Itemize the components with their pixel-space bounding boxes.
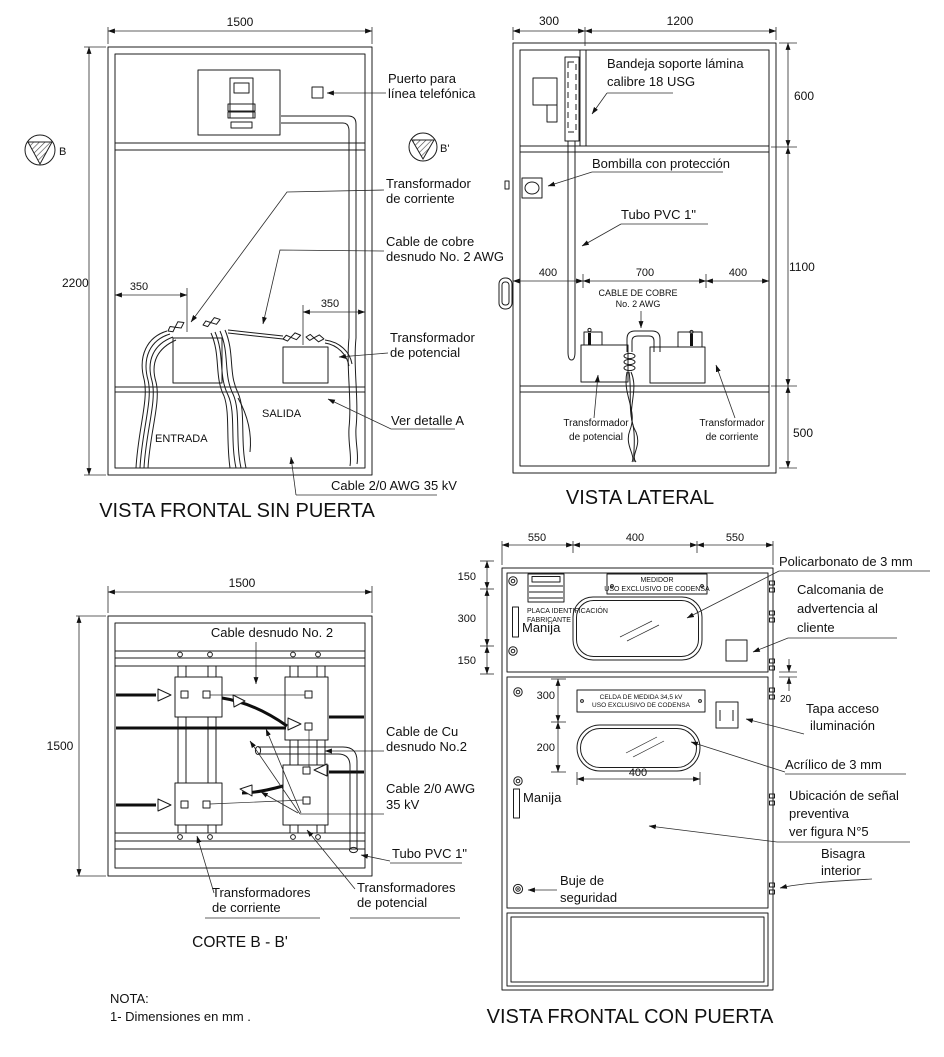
label-lat-tc-2: de corriente	[706, 432, 759, 443]
dim-700: 700	[636, 267, 654, 279]
label-acrilico: Acrílico de 3 mm	[785, 757, 882, 772]
dim-400-b: 400	[729, 267, 747, 279]
dim-150-a: 150	[458, 571, 476, 583]
dim-400-window: 400	[629, 767, 647, 779]
plate-medidor-line-2: USO EXCLUSIVO DE CODENSA	[604, 586, 710, 593]
door-handle-side	[499, 278, 512, 309]
view-frontal-con-puerta: PLACA IDENTIFICACIÓN FABRICANTE MEDIDOR …	[458, 532, 930, 1028]
dim-500: 500	[793, 426, 813, 440]
cable-bundle-entrada	[136, 331, 176, 468]
plate-celda-line-1: CELDA DE MEDIDA 34,5 kV	[600, 694, 683, 701]
dim-300: 300	[539, 14, 559, 28]
label-buje-1: Buje de	[560, 873, 604, 888]
label-cobre-1: Cable de cobre	[386, 234, 474, 249]
dim-150-b: 150	[458, 655, 476, 667]
dim-200-door: 200	[537, 742, 555, 754]
title-lateral: VISTA LATERAL	[566, 487, 714, 509]
title-corte: CORTE B - B'	[192, 934, 288, 951]
dim-1500-top: 1500	[227, 15, 254, 29]
label-ubicacion-1: Ubicación de señal	[789, 788, 899, 803]
section-marker-b-prime: B'	[409, 133, 449, 161]
annotations-door: Policarbonato de 3 mm Calcomania de adve…	[528, 554, 930, 905]
label-tubo-pvc: Tubo PVC 1"	[621, 207, 696, 222]
telephone-port	[312, 87, 323, 98]
label-lat-tp-2: de potencial	[569, 432, 623, 443]
potential-transformer	[282, 332, 328, 383]
label-entrada: ENTRADA	[155, 433, 208, 445]
label-corte-tc-2: de corriente	[212, 900, 281, 915]
label-tapa-2: iluminación	[810, 718, 875, 733]
label-cable-cu-1: Cable de Cu	[386, 724, 458, 739]
title-frontal-sin-puerta: VISTA FRONTAL SIN PUERTA	[99, 500, 375, 522]
hinges-right	[770, 581, 775, 894]
dim-400-top: 400	[626, 532, 644, 544]
label-cable-desnudo: Cable desnudo No. 2	[211, 625, 333, 640]
label-ubicacion-3: ver figura N°5	[789, 824, 869, 839]
lateral-pt	[581, 328, 628, 382]
section-label-b-prime: B'	[440, 143, 449, 155]
label-buje-2: seguridad	[560, 890, 617, 905]
label-manija-1: Manija	[522, 620, 561, 635]
plate-medidor-line-1: MEDIDOR	[640, 577, 673, 584]
conduit	[281, 116, 356, 338]
label-bisagra-2: interior	[821, 863, 861, 878]
view-corte-bb: 1500 1500 Cable desnudo No. 2 Cable de C…	[47, 576, 475, 1024]
lower-door: CELDA DE MEDIDA 34,5 kV USO EXCLUSIVO DE…	[513, 688, 738, 894]
dim-corte-1500-top: 1500	[229, 576, 256, 590]
section-label-b: B	[59, 146, 66, 158]
light-access-cover	[716, 702, 738, 728]
corte-cabinet	[108, 616, 372, 876]
nota-line-2: 1- Dimensiones en mm .	[110, 1009, 251, 1024]
title-con-puerta: VISTA FRONTAL CON PUERTA	[487, 1006, 774, 1028]
label-cable20: Cable 2/0 AWG 35 kV	[331, 478, 457, 493]
label-corte-tc-1: Transformadores	[212, 885, 311, 900]
label-ubicacion-2: preventiva	[789, 806, 850, 821]
label-cable20-1: Cable 2/0 AWG	[386, 781, 475, 796]
dim-400-a: 400	[539, 267, 557, 279]
label-tc-1: Transformador	[386, 176, 471, 191]
label-cable20-2: 35 kV	[386, 797, 420, 812]
label-puerto-1: Puerto para	[388, 71, 457, 86]
lateral-ct	[650, 330, 705, 383]
dim-2200: 2200	[62, 276, 89, 290]
corte-transformers	[175, 677, 328, 825]
dim-300-left: 300	[458, 613, 476, 625]
label-corte-tp-2: de potencial	[357, 895, 427, 910]
dim-20: 20	[780, 694, 792, 705]
dim-corte-1500-left: 1500	[47, 739, 74, 753]
lateral-cabinet	[513, 43, 776, 473]
dim-550-b: 550	[726, 532, 744, 544]
label-tp-2: de potencial	[390, 345, 460, 360]
dim-350-right: 350	[321, 298, 339, 310]
drawing-canvas: B B'	[0, 0, 944, 1057]
label-manija-2: Manija	[523, 790, 562, 805]
plate-celda-line-2: USO EXCLUSIVO DE CODENSA	[592, 702, 691, 709]
technical-drawing-sheet: B B'	[0, 0, 944, 1057]
label-placa-1: PLACA IDENTIFICACIÓN	[527, 606, 608, 615]
view-frontal-sin-puerta: B B'	[25, 15, 504, 522]
label-cable-cu-2: desnudo No.2	[386, 739, 467, 754]
label-salida: SALIDA	[262, 408, 302, 420]
support-tray	[533, 57, 579, 360]
label-bandeja-2: calibre 18 USG	[607, 74, 695, 89]
upper-door: PLACA IDENTIFICACIÓN FABRICANTE MEDIDOR …	[509, 574, 747, 661]
nota-line-1: NOTA:	[110, 991, 149, 1006]
label-corte-tubo: Tubo PVC 1"	[392, 846, 467, 861]
section-marker-b: B	[25, 135, 66, 165]
label-calcomania-2: advertencia al	[797, 601, 878, 616]
dimensions	[84, 27, 372, 475]
label-cobre-2: desnudo No. 2 AWG	[386, 249, 504, 264]
label-lat-tp-1: Transformador	[563, 418, 629, 429]
dim-1100: 1100	[789, 260, 815, 274]
handle-upper	[513, 607, 519, 637]
dim-550-a: 550	[528, 532, 546, 544]
label-tp-1: Transformador	[390, 330, 475, 345]
sticker-calcomania	[726, 640, 747, 661]
label-cable-cobre-1: CABLE DE COBRE	[598, 288, 677, 298]
label-calcomania-1: Calcomania de	[797, 582, 884, 597]
label-bisagra-1: Bisagra	[821, 846, 866, 861]
label-ver-detalle: Ver detalle A	[391, 413, 464, 428]
dim-1200: 1200	[667, 14, 694, 28]
current-transformer	[166, 316, 222, 383]
annotations-lateral: Bandeja soporte lámina calibre 18 USG Bo…	[548, 56, 765, 443]
label-lat-tc-1: Transformador	[699, 418, 765, 429]
dim-600: 600	[794, 89, 814, 103]
view-lateral: 300 1200 600 1100 500 400 700 400 Bandej…	[499, 14, 815, 509]
label-corte-tp-1: Transformadores	[357, 880, 456, 895]
dim-350-left: 350	[130, 281, 148, 293]
security-bushing	[513, 884, 522, 893]
label-bombilla: Bombilla con protección	[592, 156, 730, 171]
dim-300-door: 300	[537, 690, 555, 702]
label-puerto-2: línea telefónica	[388, 86, 476, 101]
label-policarbonato: Policarbonato de 3 mm	[779, 554, 913, 569]
meter-box	[198, 70, 280, 135]
label-cable-cobre-2: No. 2 AWG	[616, 299, 661, 309]
label-tapa-1: Tapa acceso	[806, 701, 879, 716]
label-tc-2: de corriente	[386, 191, 455, 206]
label-calcomania-3: cliente	[797, 620, 835, 635]
handle-lower	[514, 789, 520, 818]
light-bulb	[505, 178, 542, 198]
label-bandeja-1: Bandeja soporte lámina	[607, 56, 744, 71]
window-acrilico	[577, 725, 700, 771]
